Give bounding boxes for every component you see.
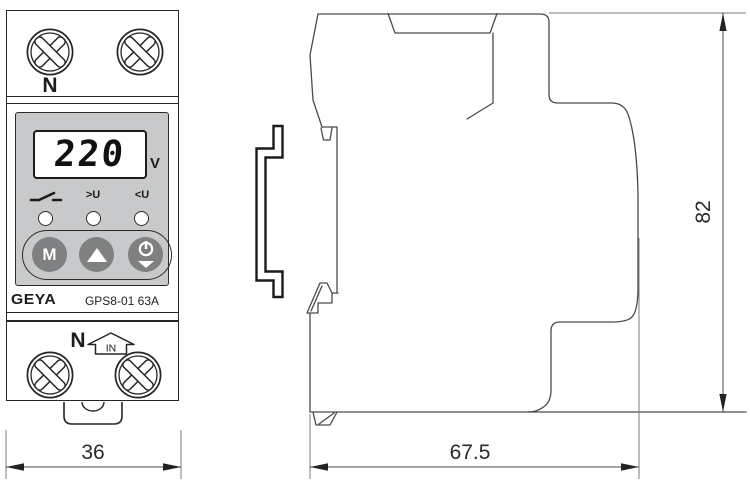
dimension-drawing: 36 67.5 82 N 220 [0, 0, 750, 490]
upper-rail-hook [322, 127, 337, 293]
mode-button-label: M [42, 245, 56, 265]
arrowhead [163, 463, 181, 471]
din-release-foot [62, 401, 126, 429]
screw-icon [26, 351, 74, 399]
section-divider [7, 320, 178, 322]
dim-text-width: 36 [81, 441, 104, 464]
overvoltage-led-indicator [86, 211, 101, 226]
dim-text-depth: 67.5 [450, 441, 491, 464]
screw-icon [116, 28, 164, 76]
undervoltage-led-indicator [134, 211, 149, 226]
voltage-reading: 220 [53, 134, 128, 175]
up-button [79, 237, 114, 272]
undervoltage-label: <U [127, 189, 157, 201]
front-bezel-line [467, 33, 493, 119]
screw-icon [26, 28, 74, 76]
section-divider [7, 312, 178, 313]
dim-text-height: 82 [692, 200, 715, 223]
arrowhead [719, 13, 726, 31]
screw-icon [114, 351, 162, 399]
power-button [128, 237, 163, 272]
device-front-view: N 220 V >U <U [6, 10, 179, 401]
face-panel: 220 V >U <U M [15, 112, 169, 286]
switch-contact-icon [29, 190, 63, 203]
arrowhead [719, 394, 726, 412]
button-group: M [22, 230, 172, 280]
arrowhead [310, 463, 328, 471]
brand-logo: GEYA [11, 291, 56, 308]
side-profile-outline [310, 14, 638, 412]
arrowhead [621, 463, 639, 471]
lcd-display: 220 [33, 130, 147, 179]
relay-led-indicator [38, 211, 53, 226]
din-rail-icon [257, 126, 283, 297]
power-restore-icon [134, 239, 158, 270]
model-number: GPS8-01 63A [69, 294, 175, 308]
voltage-unit: V [150, 155, 160, 172]
section-divider [7, 96, 178, 97]
top-terminal-label: N [38, 75, 62, 96]
mode-button: M [32, 237, 67, 272]
overvoltage-label: >U [78, 189, 108, 201]
arrowhead [6, 463, 24, 471]
top-groove [388, 14, 497, 34]
section-divider [7, 103, 178, 104]
up-triangle-icon [86, 246, 108, 264]
